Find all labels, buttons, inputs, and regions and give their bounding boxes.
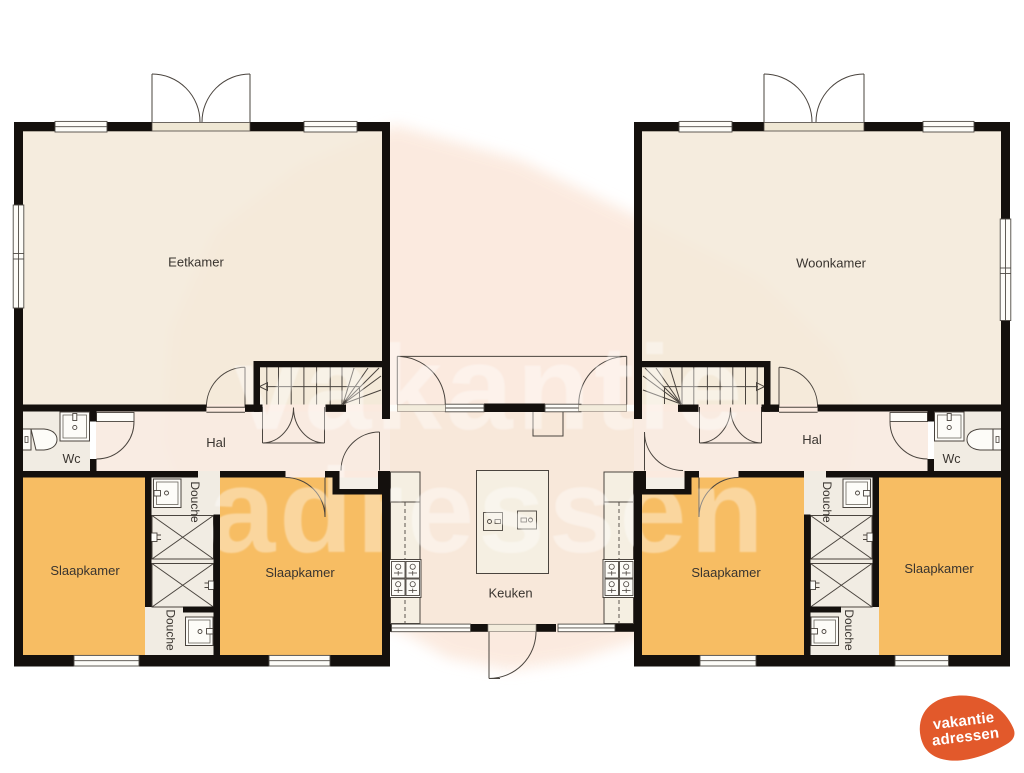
svg-text:Woonkamer: Woonkamer: [796, 256, 867, 271]
svg-text:Slaapkamer: Slaapkamer: [50, 563, 120, 578]
svg-text:Hal: Hal: [802, 432, 822, 447]
svg-text:Wc: Wc: [62, 452, 80, 466]
svg-text:adressen: adressen: [209, 444, 768, 578]
svg-text:Douche: Douche: [842, 609, 856, 651]
svg-text:Slaapkamer: Slaapkamer: [904, 561, 974, 576]
svg-text:Douche: Douche: [164, 609, 178, 651]
svg-text:Douche: Douche: [188, 481, 202, 523]
svg-text:Slaapkamer: Slaapkamer: [265, 565, 335, 580]
svg-text:Douche: Douche: [820, 481, 834, 523]
svg-text:Wc: Wc: [942, 452, 960, 466]
svg-text:Keuken: Keuken: [488, 586, 532, 601]
svg-text:Slaapkamer: Slaapkamer: [691, 565, 761, 580]
svg-text:Eetkamer: Eetkamer: [168, 255, 224, 270]
svg-text:Hal: Hal: [206, 435, 226, 450]
svg-text:vakantie: vakantie: [234, 321, 746, 455]
